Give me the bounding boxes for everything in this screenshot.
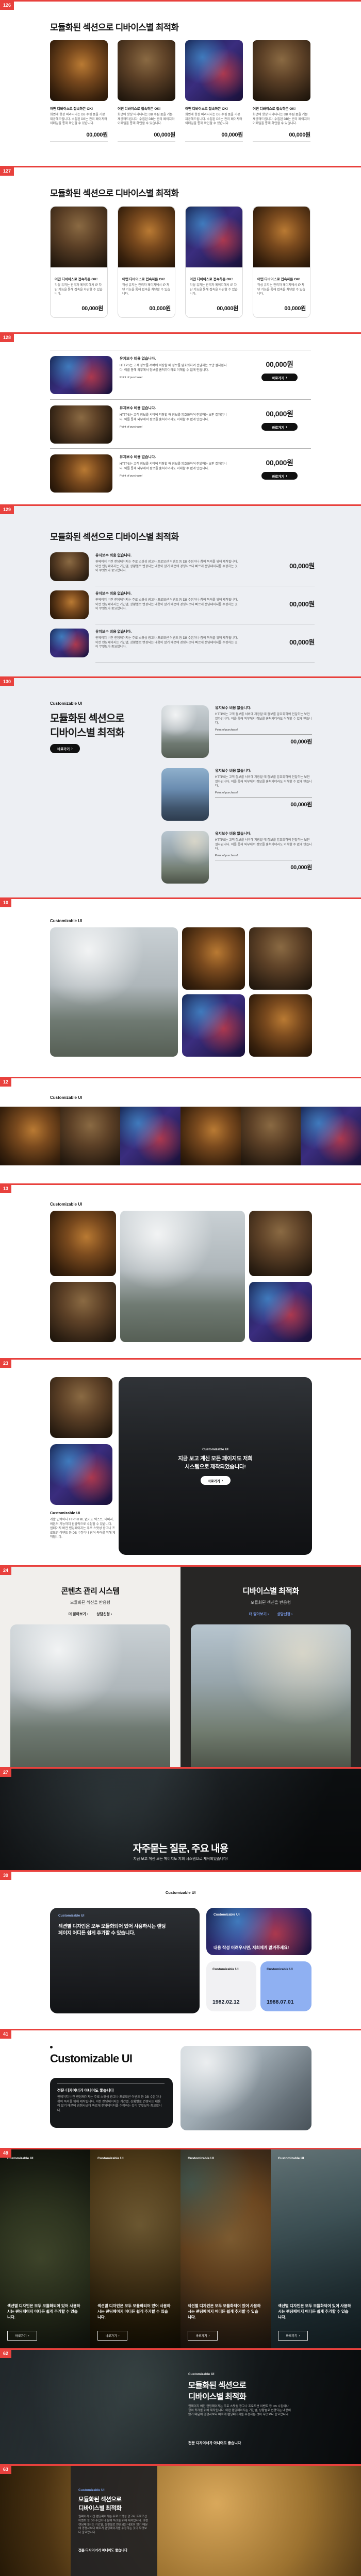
product-card[interactable]: 어떤 디바이스로 접속하든 OK! 악성 유저는 관리자 페이지에서 IP 차단… xyxy=(50,206,108,318)
section-128: 128 유지보수 비용 없습니다. HTTPS는 고객 정보를 서버에 저장할 … xyxy=(0,332,361,504)
overlay-panel: Customizable UI 모듈화된 섹션으로 디바이스별 최적화 원페이지… xyxy=(71,2466,157,2576)
eyebrow-label: Customizable UI xyxy=(50,1202,82,1207)
section-39: 39 Customizable UI Customizable UI 섹션별 디… xyxy=(0,1870,361,2029)
section-number-badge: 24 xyxy=(0,1567,11,1575)
eyebrow-label: Customizable UI xyxy=(50,701,82,706)
section-number-badge: 13 xyxy=(0,1185,11,1193)
section-number-badge: 126 xyxy=(0,2,14,10)
consult-link[interactable]: 상담신청 › xyxy=(96,1612,112,1617)
section-13: 13 Customizable UI xyxy=(0,1183,361,1358)
panel-image xyxy=(191,1624,351,1767)
product-image xyxy=(253,207,310,267)
item-price: 00,000원 xyxy=(215,737,312,745)
item-note: Point of purchase! xyxy=(120,426,229,429)
product-card[interactable]: 어떤 디바이스로 접속하든 OK! 악성 유저는 관리자 페이지에서 IP 차단… xyxy=(253,206,310,318)
item-image xyxy=(161,831,209,884)
list-item[interactable]: 유지보수 비용 없습니다. HTTPS는 고객 정보를 서버에 저장할 때 정보… xyxy=(161,705,312,758)
product-desc: 악성 유저는 관리자 페이지에서 IP 차단 기능을 통해 접속을 차단할 수 … xyxy=(257,283,306,301)
product-image xyxy=(185,40,243,101)
panel-links: 더 알아보기 › 상담신청 › xyxy=(0,1612,180,1617)
hero-overlay xyxy=(0,2350,361,2464)
side-desc: 개발 인력이나 FTP/HTML 없이도 텍스트, 이미지, 버튼의 기능까지 … xyxy=(50,1518,116,1540)
product-desc: 화면에 항상 따라다니는 DB 수집 폼을 기본 제공해드립니다. 수집된 DB… xyxy=(118,113,175,130)
chevron-right-icon: › xyxy=(291,1613,292,1616)
section-126: 126 모듈화된 섹션으로 디바이스별 최적화 어떤 디바이스로 접속하든 OK… xyxy=(0,0,361,166)
go-button[interactable]: 바로가기› xyxy=(188,2331,218,2341)
list-item[interactable]: 유지보수 비용 없습니다. HTTPS는 고객 정보를 서버에 저장할 때 정보… xyxy=(50,448,311,493)
item-image xyxy=(50,454,112,493)
panel-eyebrow: Customizable UI xyxy=(78,2488,105,2492)
eyebrow-label: Customizable UI xyxy=(50,1511,80,1515)
product-desc: 화면에 항상 따라다니는 DB 수집 폼을 기본 제공해드립니다. 수집된 DB… xyxy=(185,113,243,130)
bento-card-robot[interactable]: Customizable UI 내용 작성 어려우시면, 저희에게 맡겨주세요! xyxy=(206,1908,311,1955)
product-image xyxy=(253,40,310,101)
strip-image xyxy=(120,1107,180,1165)
item-image xyxy=(50,590,89,619)
row-divider xyxy=(215,734,312,735)
item-image xyxy=(161,768,209,821)
product-title: 어떤 디바이스로 접속하든 OK! xyxy=(190,276,238,281)
section-10: 10 Customizable UI xyxy=(0,897,361,1077)
item-title: 유지보수 비용 없습니다. xyxy=(215,768,312,773)
panel-image xyxy=(10,1624,170,1767)
panel-desc: 원페이지 버전 랜딩페이지는 주로 스팟성 광고나 프로모션 이벤트 등 DB … xyxy=(78,2515,149,2535)
section-title-line1: 모듈화된 섹션으로 xyxy=(50,710,124,725)
card-eyebrow: Customizable UI xyxy=(58,1914,85,1918)
item-desc: HTTPS는 고객 정보를 서버에 저장할 때 정보를 암호화하여 전달하는 보… xyxy=(215,713,312,726)
hero-title: 자주묻는 질문, 주요 내용 xyxy=(0,1841,361,1855)
card-date: 1988.07.01 xyxy=(267,1999,294,2005)
list-item[interactable]: 유지보수 비용 없습니다. HTTPS는 고객 정보를 서버에 저장할 때 정보… xyxy=(161,831,312,884)
item-title: 유지보수 비용 없습니다. xyxy=(95,591,239,596)
product-title: 어떤 디바이스로 접속하든 OK! xyxy=(50,106,108,111)
item-desc: 원페이지 버전 랜딩페이지는 주로 스팟성 광고나 프로모션 이벤트 등 DB … xyxy=(95,636,239,650)
section-title: 모듈화된 섹션으로 디바이스별 최적화 xyxy=(50,530,178,543)
item-desc: HTTPS는 고객 정보를 서버에 저장할 때 정보를 암호화하여 전달하는 보… xyxy=(215,838,312,852)
product-card[interactable]: 어떤 디바이스로 접속하든 OK! 화면에 항상 따라다니는 DB 수집 폼을 … xyxy=(253,40,310,142)
strip-image xyxy=(0,1107,60,1165)
list-item[interactable]: 유지보수 비용 없습니다. HTTPS는 고객 정보를 서버에 저장할 때 정보… xyxy=(50,399,311,444)
card-desc: 원페이지 버전 랜딩페이지는 주로 스팟성 광고나 프로모션 이벤트 등 DB … xyxy=(57,2095,162,2113)
section-number-badge: 39 xyxy=(0,1872,11,1880)
section-title-line2: 디바이스별 최적화 xyxy=(50,724,124,739)
item-title: 유지보수 비용 없습니다. xyxy=(95,629,239,634)
section-title: 모듈화된 섹션으로 디바이스별 최적화 xyxy=(50,20,178,33)
bullet-dot-icon xyxy=(50,2046,53,2048)
item-price: 00,000원 xyxy=(289,599,315,608)
hero-eyebrow: Customizable UI xyxy=(188,2372,215,2376)
product-price: 00,000원 xyxy=(118,130,175,142)
hero-title-line2: 디바이스별 최적화 xyxy=(188,2391,246,2402)
product-desc: 악성 유저는 관리자 페이지에서 IP 차단 기능을 통해 접속을 차단할 수 … xyxy=(55,283,103,301)
section-number-badge: 62 xyxy=(0,2350,11,2358)
feature-column: Customizable UI 섹션별 디자인은 모두 모듈화되어 있어 사용하… xyxy=(0,2149,90,2348)
column-text: 섹션별 디자인은 모두 모듈화되어 있어 사용하시는 랜딩페이지 어디든 쉽게 … xyxy=(188,2303,261,2320)
card-eyebrow: Customizable UI xyxy=(214,1913,240,1917)
section-63: 63 Customizable UI 모듈화된 섹션으로 디바이스별 최적화 원… xyxy=(0,2464,361,2576)
product-card[interactable]: 어떤 디바이스로 접속하든 OK! 악성 유저는 관리자 페이지에서 IP 차단… xyxy=(118,206,175,318)
product-card-row: 어떤 디바이스로 접속하든 OK! 화면에 항상 따라다니는 DB 수집 폼을 … xyxy=(50,40,310,142)
item-note: Point of purchase! xyxy=(215,791,312,794)
card-divider xyxy=(57,2083,165,2083)
section-number-badge: 129 xyxy=(0,506,14,514)
column-text: 섹션별 디자인은 모두 모듈화되어 있어 사용하시는 랜딩페이지 어디든 쉽게 … xyxy=(278,2303,351,2320)
go-button[interactable]: 바로가기› xyxy=(278,2331,308,2341)
feature-image xyxy=(180,2046,311,2130)
product-card[interactable]: 어떤 디바이스로 접속하든 OK! 악성 유저는 관리자 페이지에서 IP 차단… xyxy=(185,206,243,318)
section-number-badge: 12 xyxy=(0,1078,11,1087)
panel-links: 더 알아보기 › 상담신청 › xyxy=(180,1612,361,1617)
list-item[interactable]: 유지보수 비용 없습니다. HTTPS는 고객 정보를 서버에 저장할 때 정보… xyxy=(161,768,312,821)
item-price: 00,000원 xyxy=(289,637,315,647)
section-130: 130 Customizable UI 모듈화된 섹션으로 디바이스별 최적화 … xyxy=(0,676,361,897)
product-price: 00,000원 xyxy=(55,304,103,312)
gallery-image-large xyxy=(50,927,178,1057)
section-12: 12 Customizable UI xyxy=(0,1077,361,1183)
bento-card-date-gray[interactable]: Customizable UI 1982.02.12 xyxy=(206,1961,256,2011)
row-divider xyxy=(95,624,315,624)
product-price: 00,000원 xyxy=(253,130,310,142)
chevron-right-icon: › xyxy=(119,2334,120,2337)
section-number-badge: 63 xyxy=(0,2466,11,2474)
go-button[interactable]: 바로가기› xyxy=(50,744,80,753)
row-divider xyxy=(215,797,312,798)
go-button[interactable]: 바로가기› xyxy=(97,2331,127,2341)
feature-column: Customizable UI 섹션별 디자인은 모두 모듈화되어 있어 사용하… xyxy=(271,2149,361,2348)
product-card[interactable]: 어떤 디바이스로 접속하든 OK! 화면에 항상 따라다니는 DB 수집 폼을 … xyxy=(185,40,243,142)
item-image xyxy=(50,552,89,581)
product-card-row: 어떤 디바이스로 접속하든 OK! 악성 유저는 관리자 페이지에서 IP 차단… xyxy=(50,206,310,318)
product-price: 00,000원 xyxy=(122,304,171,312)
strip-image xyxy=(301,1107,361,1165)
item-note: Point of purchase! xyxy=(215,854,312,857)
image-strip xyxy=(0,1107,361,1165)
gallery-image xyxy=(50,1211,116,1276)
chevron-right-icon: › xyxy=(222,1479,223,1483)
section-49: 49 Customizable UI 섹션별 디자인은 모두 모듈화되어 있어 … xyxy=(0,2148,361,2348)
row-divider xyxy=(95,586,315,586)
column-eyebrow: Customizable UI xyxy=(278,2157,304,2160)
go-button[interactable]: 바로가기› xyxy=(201,1476,231,1485)
product-desc: 화면에 항상 따라다니는 DB 수집 폼을 기본 제공해드립니다. 수집된 DB… xyxy=(50,113,108,130)
hero-title-line1: 모듈화된 섹션으로 xyxy=(188,2379,246,2391)
chevron-right-icon: › xyxy=(71,747,73,751)
card-title: 전문 디자이너가 아니어도 좋습니다 xyxy=(57,2088,114,2093)
list-item[interactable]: 유지보수 비용 없습니다. 원페이지 버전 랜딩페이지는 주로 스팟성 광고나 … xyxy=(50,590,315,624)
strip-image xyxy=(180,1107,241,1165)
item-image xyxy=(161,705,209,758)
section-127: 127 모듈화된 섹션으로 디바이스별 최적화 어떤 디바이스로 접속하든 OK… xyxy=(0,166,361,332)
card-eyebrow: Customizable UI xyxy=(212,1968,239,1971)
list-item[interactable]: 유지보수 비용 없습니다. 원페이지 버전 랜딩페이지는 주로 스팟성 광고나 … xyxy=(50,552,315,586)
product-image xyxy=(118,40,175,101)
section-number-badge: 49 xyxy=(0,2149,11,2158)
hero-subtitle: 지금 보고 계신 모든 페이지도 저희 시스템으로 제작되었습니다! xyxy=(0,1856,361,1861)
product-title: 어떤 디바이스로 접속하든 OK! xyxy=(55,276,103,281)
item-image xyxy=(50,356,112,394)
product-card[interactable]: 어떤 디바이스로 접속하든 OK! 화면에 항상 따라다니는 DB 수집 폼을 … xyxy=(118,40,175,142)
gallery-image xyxy=(249,927,312,990)
panel-light: 콘텐츠 관리 시스템 모듈화된 섹션을 반응형 더 알아보기 › 상담신청 › xyxy=(0,1567,180,1767)
item-price: 00,000원 xyxy=(248,359,311,369)
eyebrow-label: Customizable UI xyxy=(50,919,82,923)
section-number-badge: 128 xyxy=(0,334,14,342)
item-image xyxy=(50,405,112,444)
product-desc: 악성 유저는 관리자 페이지에서 IP 차단 기능을 통해 접속을 차단할 수 … xyxy=(122,283,171,301)
product-title: 어떤 디바이스로 접속하든 OK! xyxy=(122,276,171,281)
center-eyebrow: Customizable UI xyxy=(0,1890,361,1895)
gallery-image xyxy=(50,1282,116,1342)
product-price: 00,000원 xyxy=(185,130,243,142)
feature-column: Customizable UI 섹션별 디자인은 모두 모듈화되어 있어 사용하… xyxy=(180,2149,271,2348)
hero-title-line1: 지금 보고 계신 모든 페이지도 저희 xyxy=(119,1454,312,1462)
column-text: 섹션별 디자인은 모두 모듈화되어 있어 사용하시는 랜딩페이지 어디든 쉽게 … xyxy=(97,2303,171,2320)
section-129: 129 모듈화된 섹션으로 디바이스별 최적화 유지보수 비용 없습니다. 원페… xyxy=(0,504,361,676)
go-button[interactable]: 바로가기› xyxy=(261,472,298,480)
chevron-right-icon: › xyxy=(299,2334,300,2337)
chevron-right-icon: › xyxy=(286,376,287,380)
product-price: 00,000원 xyxy=(190,304,238,312)
gallery-image xyxy=(249,1282,312,1342)
panel-subtitle: 모듈화된 섹션을 반응형 xyxy=(0,1600,180,1605)
product-image xyxy=(118,207,175,267)
item-title: 유지보수 비용 없습니다. xyxy=(215,705,312,710)
hero-footnote: 전문 디자이너가 아니어도 좋습니다 xyxy=(188,2441,241,2446)
hero-desc: 원페이지 버전 랜딩페이지는 주로 스팟성 광고나 프로모션 이벤트 등 DB … xyxy=(188,2404,291,2417)
eyebrow-label: Customizable UI xyxy=(50,1095,82,1100)
chevron-right-icon: › xyxy=(111,1613,112,1616)
hero-title-line2: 시스템으로 제작되었습니다! xyxy=(119,1463,312,1470)
consult-link[interactable]: 상담신청 › xyxy=(277,1612,292,1617)
product-image xyxy=(186,207,242,267)
column-eyebrow: Customizable UI xyxy=(97,2157,124,2160)
item-desc: 원페이지 버전 랜딩페이지는 주로 스팟성 광고나 프로모션 이벤트 등 DB … xyxy=(95,560,239,573)
product-title: 어떤 디바이스로 접속하든 OK! xyxy=(253,106,310,111)
learn-more-link[interactable]: 더 알아보기 › xyxy=(249,1612,269,1617)
section-62: 62 Customizable UI 모듈화된 섹션으로 디바이스별 최적화 원… xyxy=(0,2348,361,2464)
item-desc: HTTPS는 고객 정보를 서버에 저장할 때 정보를 암호화하여 전달하는 보… xyxy=(215,775,312,789)
section-number-badge: 41 xyxy=(0,2030,11,2039)
card-text: 내용 작성 어려우시면, 저희에게 맡겨주세요! xyxy=(214,1945,289,1951)
item-desc: 원페이지 버전 랜딩페이지는 주로 스팟성 광고나 프로모션 이벤트 등 DB … xyxy=(95,598,239,612)
feature-card: 전문 디자이너가 아니어도 좋습니다 원페이지 버전 랜딩페이지는 주로 스팟성… xyxy=(50,2078,173,2128)
item-note: Point of purchase! xyxy=(120,376,229,379)
gallery-image xyxy=(182,994,245,1057)
panel-title-line1: 모듈화된 섹션으로 xyxy=(78,2495,121,2503)
product-title: 어떤 디바이스로 접속하든 OK! xyxy=(257,276,306,281)
item-title: 유지보수 비용 없습니다. xyxy=(95,553,239,558)
column-eyebrow: Customizable UI xyxy=(188,2157,214,2160)
product-desc: 악성 유저는 관리자 페이지에서 IP 차단 기능을 통해 접속을 차단할 수 … xyxy=(190,283,238,301)
section-number-badge: 27 xyxy=(0,1769,11,1777)
item-desc: HTTPS는 고객 정보를 서버에 저장할 때 정보를 암호화하여 전달하는 보… xyxy=(120,413,229,422)
product-title: 어떤 디바이스로 접속하든 OK! xyxy=(185,106,243,111)
row-divider xyxy=(215,860,312,860)
item-price: 00,000원 xyxy=(289,561,315,570)
chevron-right-icon: › xyxy=(87,1613,88,1616)
section-number-badge: 23 xyxy=(0,1360,11,1368)
item-title: 유지보수 비용 없습니다. xyxy=(215,831,312,836)
section-24: 24 콘텐츠 관리 시스템 모듈화된 섹션을 반응형 더 알아보기 › 상담신청… xyxy=(0,1565,361,1767)
section-number-badge: 127 xyxy=(0,167,14,176)
hero-card: Customizable UI 지금 보고 계신 모든 페이지도 저희 시스템으… xyxy=(119,1377,312,1555)
go-button[interactable]: 바로가기› xyxy=(7,2331,37,2341)
section-23: 23 Customizable UI 개발 인력이나 FTP/HTML 없이도 … xyxy=(0,1358,361,1565)
list-item[interactable]: 유지보수 비용 없습니다. HTTPS는 고객 정보를 서버에 저장할 때 정보… xyxy=(50,350,311,394)
chevron-right-icon: › xyxy=(28,2334,29,2337)
panel-title: 콘텐츠 관리 시스템 xyxy=(0,1585,180,1596)
template-catalog-page: 126 모듈화된 섹션으로 디바이스별 최적화 어떤 디바이스로 접속하든 OK… xyxy=(0,0,361,2576)
strip-image xyxy=(60,1107,121,1165)
section-41: 41 Customizable UI 전문 디자이너가 아니어도 좋습니다 원페… xyxy=(0,2029,361,2148)
chevron-right-icon: › xyxy=(286,474,287,478)
strip-image xyxy=(241,1107,301,1165)
item-note: Point of purchase! xyxy=(215,728,312,732)
item-price: 00,000원 xyxy=(215,800,312,808)
bento-card-large[interactable]: Customizable UI 섹션별 디자인은 모두 모듈화되어 있어 사용하… xyxy=(50,1908,200,2013)
gallery-image xyxy=(182,927,245,990)
go-button[interactable]: 바로가기› xyxy=(261,374,298,381)
product-image xyxy=(50,40,108,101)
card-text: 섹션별 디자인은 모두 모듈화되어 있어 사용하시는 랜딩페이지 어디든 쉽게 … xyxy=(58,1923,167,1937)
panel-dark: 디바이스별 최적화 모듈화된 섹션을 반응형 더 알아보기 › 상담신청 › xyxy=(180,1567,361,1767)
item-title: 유지보수 비용 없습니다. xyxy=(120,356,229,361)
chevron-right-icon: › xyxy=(286,425,287,429)
product-title: 어떤 디바이스로 접속하든 OK! xyxy=(118,106,175,111)
card-date: 1982.02.12 xyxy=(212,1999,240,2005)
panel-title-line2: 디바이스별 최적화 xyxy=(78,2504,121,2512)
gallery-image xyxy=(249,1211,312,1276)
item-price: 00,000원 xyxy=(248,409,311,419)
card-eyebrow: Customizable UI xyxy=(267,1968,293,1971)
hero-eyebrow: Customizable UI xyxy=(119,1448,312,1451)
column-text: 섹션별 디자인은 모두 모듈화되어 있어 사용하시는 랜딩페이지 어디든 쉽게 … xyxy=(7,2303,80,2320)
product-price: 00,000원 xyxy=(257,304,306,312)
bento-card-date-blue[interactable]: Customizable UI 1988.07.01 xyxy=(260,1961,311,2011)
gallery-image-large xyxy=(120,1211,245,1342)
section-title: 모듈화된 섹션으로 디바이스별 최적화 xyxy=(50,186,178,199)
chevron-right-icon: › xyxy=(209,2334,210,2337)
list-item[interactable]: 유지보수 비용 없습니다. 원페이지 버전 랜딩페이지는 주로 스팟성 광고나 … xyxy=(50,629,315,663)
item-desc: HTTPS는 고객 정보를 서버에 저장할 때 정보를 암호화하여 전달하는 보… xyxy=(120,462,229,471)
panel-title: 디바이스별 최적화 xyxy=(180,1585,361,1596)
product-card[interactable]: 어떤 디바이스로 접속하든 OK! 화면에 항상 따라다니는 DB 수집 폼을 … xyxy=(50,40,108,142)
chevron-right-icon: › xyxy=(268,1613,269,1616)
item-price: 00,000원 xyxy=(248,457,311,468)
side-image xyxy=(50,1444,112,1505)
panel-footnote: 전문 디자이너가 아니어도 좋습니다 xyxy=(78,2547,127,2552)
panel-subtitle: 모듈화된 섹션을 반응형 xyxy=(180,1600,361,1605)
item-note: Point of purchase! xyxy=(120,474,229,478)
go-button[interactable]: 바로가기› xyxy=(261,423,298,431)
product-desc: 화면에 항상 따라다니는 DB 수집 폼을 기본 제공해드립니다. 수집된 DB… xyxy=(253,113,310,130)
learn-more-link[interactable]: 더 알아보기 › xyxy=(69,1612,88,1617)
feature-column: Customizable UI 섹션별 디자인은 모두 모듈화되어 있어 사용하… xyxy=(90,2149,180,2348)
row-divider xyxy=(95,662,315,663)
item-title: 유지보수 비용 없습니다. xyxy=(120,405,229,411)
product-price: 00,000원 xyxy=(50,130,108,142)
hero-overlay xyxy=(0,1769,361,1870)
section-27: 27 자주묻는 질문, 주요 내용 지금 보고 계신 모든 페이지도 저희 시스… xyxy=(0,1767,361,1870)
item-title: 유지보수 비용 없습니다. xyxy=(120,454,229,460)
gallery-image xyxy=(249,994,312,1057)
section-number-badge: 130 xyxy=(0,678,14,686)
item-price: 00,000원 xyxy=(215,863,312,871)
item-image xyxy=(50,629,89,657)
item-desc: HTTPS는 고객 정보를 서버에 저장할 때 정보를 암호화하여 전달하는 보… xyxy=(120,364,229,372)
section-heading: Customizable UI xyxy=(50,2052,132,2065)
side-image xyxy=(50,1377,112,1438)
section-number-badge: 10 xyxy=(0,899,11,907)
product-image xyxy=(51,207,107,267)
